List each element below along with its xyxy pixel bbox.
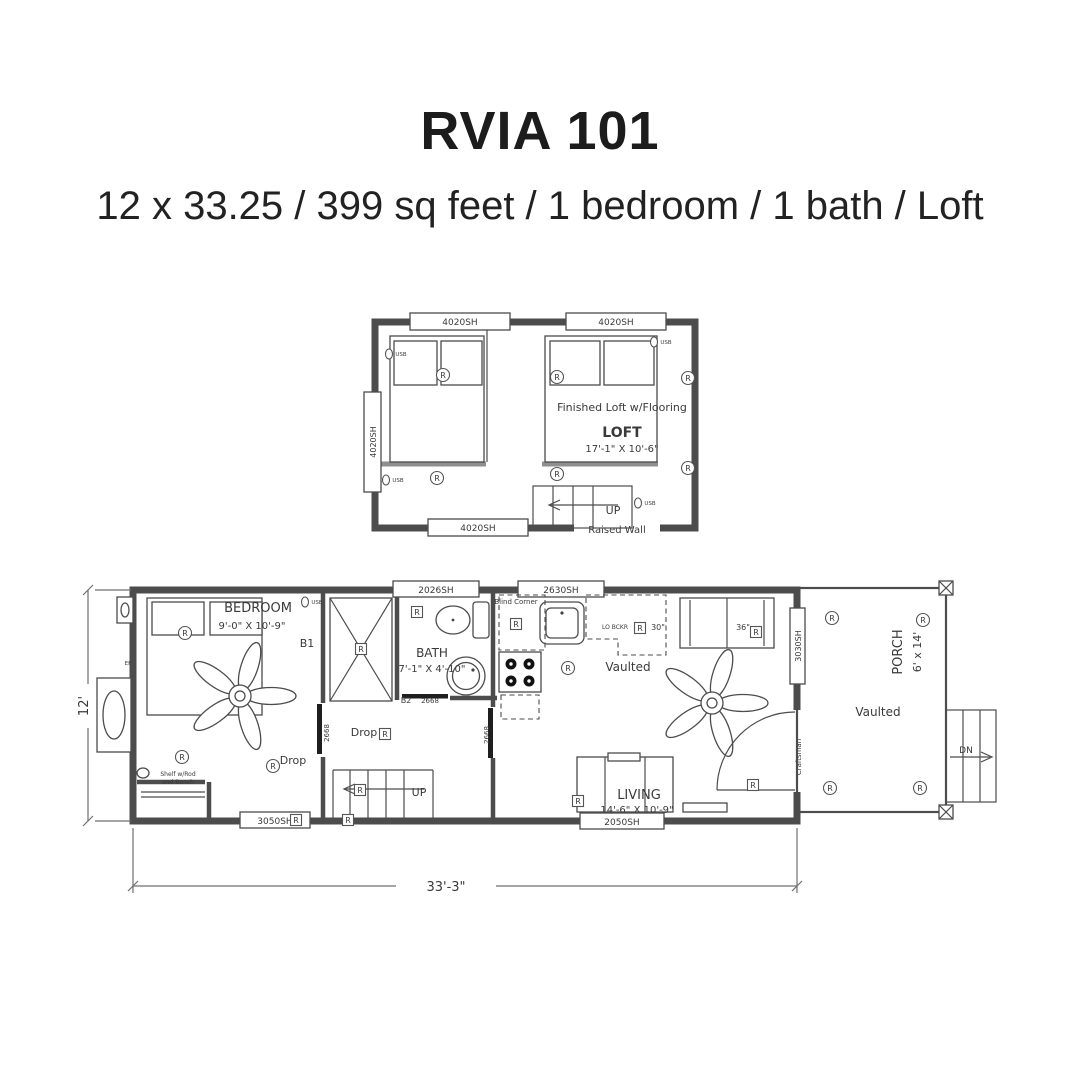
receptacle-label: R	[440, 371, 446, 380]
receptacle-label: R	[554, 470, 560, 479]
porch-post-top	[939, 581, 953, 595]
bedroom-door-size: 2668	[323, 724, 331, 742]
toilet	[436, 602, 489, 638]
dimension-width: 33'-3"	[128, 828, 802, 896]
base-cabinet	[501, 695, 539, 719]
living-ceiling-fan	[662, 647, 768, 759]
porch-post-bottom	[939, 805, 953, 819]
kitchen-sink	[540, 602, 584, 644]
porch-steps: DN	[946, 710, 996, 802]
width-dim-label: 33'-3"	[426, 880, 465, 895]
bedroom-dims: 9'-0" X 10'-9"	[219, 621, 286, 632]
receptacle-label: R	[179, 753, 185, 762]
porch-window: 3030SH	[790, 608, 805, 684]
sconce-icon	[137, 768, 149, 778]
receptacle-label: R	[917, 784, 923, 793]
receptacle-label: R	[270, 762, 276, 771]
receptacle-label: R	[685, 464, 691, 473]
living-name: LIVING	[617, 788, 661, 803]
loft-note: Finished Loft w/Flooring	[557, 401, 687, 414]
usb-label: USB	[395, 352, 407, 358]
washer	[447, 657, 485, 695]
window-label: 2026SH	[418, 586, 453, 596]
bath-window: 2026SH	[393, 581, 479, 597]
porch-dims: 6' x 14'	[911, 632, 924, 673]
exterior-fixture-large	[97, 678, 131, 752]
main-floor-plan: Shelf w/Rod and Bench BEDROOM 9'-0" X	[76, 581, 996, 896]
floor-plan-page: RVIA 101 12 x 33.25 / 399 sq feet / 1 be…	[0, 0, 1080, 1080]
window-label: 2630SH	[543, 586, 578, 596]
receptacle-label: R	[358, 645, 364, 654]
stove	[499, 652, 541, 692]
window-label: 4020SH	[598, 318, 633, 328]
sofa-width-label: 36"	[736, 623, 750, 632]
up-label: UP	[606, 504, 621, 517]
usb-label: USB	[311, 600, 323, 606]
receptacle-label: R	[554, 373, 560, 382]
receptacle-label: R	[829, 614, 835, 623]
receptacle-label: R	[575, 797, 581, 806]
receptacle-label: R	[382, 730, 388, 739]
usb-outlet-icon	[386, 349, 393, 359]
exhaust-fan-label: EF	[125, 661, 132, 667]
height-dim-label: 12'	[77, 696, 92, 716]
raised-wall-label: Raised Wall	[588, 525, 645, 536]
receptacle-label: R	[182, 629, 188, 638]
sofa: 36"	[680, 598, 774, 648]
window-label: 2050SH	[604, 818, 639, 828]
loft-room-name: LOFT	[602, 425, 642, 441]
loft-room-dims: 17'-1" X 10'-6"	[585, 444, 658, 455]
window-label: 4020SH	[369, 426, 378, 457]
window-label: 4020SH	[460, 524, 495, 534]
bath-door-size: 2668	[421, 697, 439, 705]
closet-note-line2: and Bench	[162, 779, 194, 786]
loft-window-top-right: 4020SH	[566, 313, 666, 330]
receptacle-label: R	[565, 664, 571, 673]
bedroom-closet: Shelf w/Rod and Bench	[137, 768, 209, 818]
receptacle-label: R	[685, 374, 691, 383]
usb-outlet-icon	[651, 337, 658, 347]
receptacle-label: R	[434, 474, 440, 483]
tv-console	[577, 753, 673, 812]
receptacle-label: R	[827, 784, 833, 793]
receptacle-label: R	[513, 620, 519, 629]
kitchen-window: 2630SH	[518, 581, 604, 597]
loft-window-bottom: 4020SH	[428, 519, 528, 536]
bath-name: BATH	[416, 646, 448, 660]
main-stairs: UP	[333, 770, 433, 819]
loft-window-top-left: 4020SH	[410, 313, 510, 330]
receptacle-label: R	[750, 781, 756, 790]
window-label: 3030SH	[794, 630, 803, 661]
loft-window-left: 4020SH	[364, 392, 381, 492]
bedroom-door-leaf	[317, 704, 322, 754]
living-window-bottom: 2050SH	[580, 813, 664, 829]
receptacle-label: R	[357, 786, 363, 795]
receptacle-label: R	[345, 816, 351, 825]
up-label: UP	[412, 786, 427, 799]
porch: 3030SH PORCH 6' x 14' Vaulted DN	[790, 581, 996, 819]
bedroom-drop-label: Drop	[280, 754, 306, 767]
usb-label: USB	[392, 478, 404, 484]
blind-corner-label: Blind Corner	[494, 598, 537, 606]
floor-plan-svg: 4020SH 4020SH 4020SH 4020SH Raised Wall	[0, 0, 1080, 1080]
window-label: 3050SH	[257, 817, 292, 827]
receptacle-label: R	[753, 628, 759, 637]
usb-outlet-icon	[383, 475, 390, 485]
bath-dims: 7'-1" X 4'-10"	[399, 664, 466, 675]
closet-note-line1: Shelf w/Rod	[160, 771, 195, 778]
porch-name: PORCH	[891, 629, 906, 674]
window-label: 4020SH	[442, 318, 477, 328]
bath1-tag: B1	[300, 637, 315, 650]
usb-outlet-icon	[302, 597, 309, 607]
cabinet-code-label: LO BCKR	[602, 624, 628, 631]
receptacle-label: R	[414, 608, 420, 617]
exterior-fixture-small	[117, 597, 133, 623]
dn-label: DN	[959, 746, 973, 756]
kitchen-vaulted-label: Vaulted	[605, 660, 650, 674]
hearth-step	[683, 803, 727, 812]
usb-outlet-icon	[635, 498, 642, 508]
usb-label: USB	[660, 340, 672, 346]
bath2-tag: B2	[401, 696, 412, 705]
bedroom-name: BEDROOM	[224, 601, 292, 616]
receptacle-label: R	[920, 616, 926, 625]
receptacle-label: R	[293, 816, 299, 825]
hall-drop-label: Drop	[351, 726, 377, 739]
hall-door-size: 2668	[483, 726, 491, 744]
receptacle-label: R	[637, 624, 643, 633]
porch-vaulted-label: Vaulted	[855, 705, 900, 719]
usb-label: USB	[644, 501, 656, 507]
cabinet-30-label: 30"	[651, 623, 665, 632]
